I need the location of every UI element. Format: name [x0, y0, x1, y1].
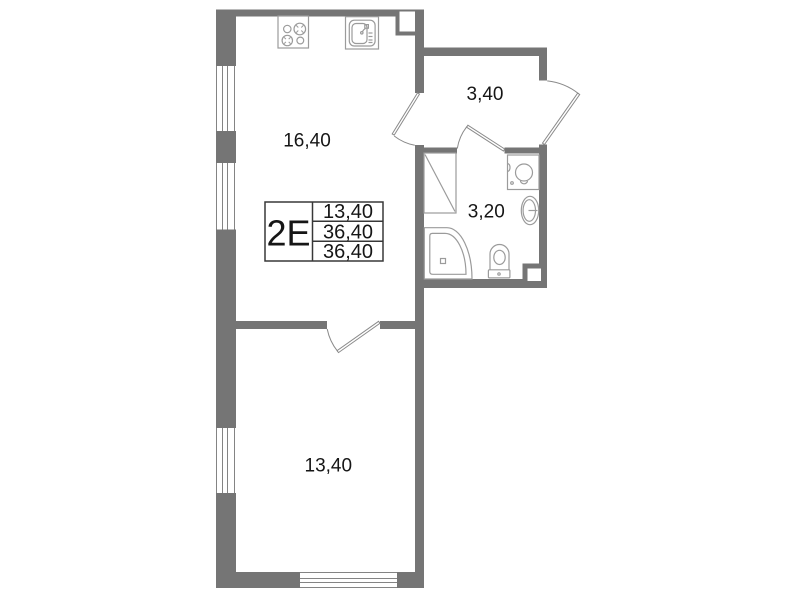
- svg-text:3,20: 3,20: [468, 201, 505, 222]
- svg-text:36,40: 36,40: [323, 241, 373, 263]
- svg-text:36,40: 36,40: [323, 221, 373, 243]
- svg-text:13,40: 13,40: [305, 455, 353, 476]
- svg-text:13,40: 13,40: [323, 201, 373, 223]
- svg-text:2Е: 2Е: [266, 213, 310, 254]
- svg-text:3,40: 3,40: [467, 84, 504, 105]
- svg-text:16,40: 16,40: [283, 131, 331, 152]
